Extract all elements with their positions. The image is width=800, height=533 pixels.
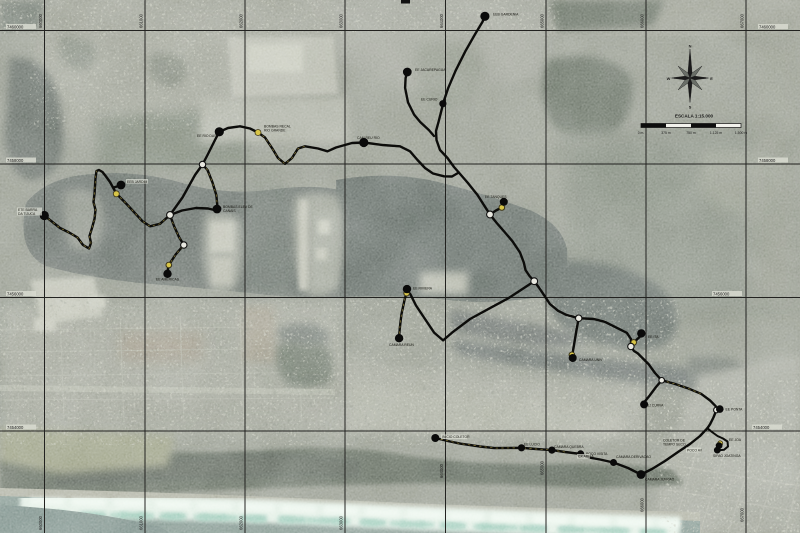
svg-text:667000: 667000 — [740, 507, 745, 522]
svg-text:S: S — [689, 105, 692, 110]
svg-text:EE PONTA: EE PONTA — [726, 408, 744, 412]
svg-text:CAMARA QUEBRA: CAMARA QUEBRA — [554, 445, 584, 449]
svg-text:EE AMERICAS: EE AMERICAS — [156, 278, 180, 282]
svg-text:TEMPO SECO: TEMPO SECO — [663, 443, 686, 447]
svg-text:E: E — [710, 76, 713, 81]
svg-text:DA TIJUCA: DA TIJUCA — [18, 212, 36, 216]
svg-text:7460000: 7460000 — [759, 25, 776, 30]
svg-text:N: N — [689, 44, 692, 49]
svg-text:662000: 662000 — [239, 13, 244, 28]
svg-text:0 m.: 0 m. — [638, 131, 645, 135]
svg-text:7456000: 7456000 — [7, 292, 24, 297]
svg-text:EE LUCIO: EE LUCIO — [524, 443, 540, 447]
svg-text:1.500 m: 1.500 m — [735, 131, 747, 135]
svg-text:INICIO COLETOR: INICIO COLETOR — [442, 435, 470, 439]
svg-text:CX AREIA: CX AREIA — [578, 455, 594, 459]
svg-text:661000: 661000 — [139, 13, 144, 28]
svg-text:667000: 667000 — [740, 13, 745, 28]
svg-text:POCO AV: POCO AV — [687, 448, 703, 452]
svg-text:RIO GRANDE: RIO GRANDE — [264, 129, 286, 133]
svg-text:666000: 666000 — [640, 13, 645, 28]
svg-text:7454000: 7454000 — [753, 425, 770, 430]
svg-text:660000: 660000 — [38, 515, 43, 530]
svg-text:7460000: 7460000 — [7, 25, 24, 30]
svg-text:665000: 665000 — [540, 460, 545, 475]
svg-text:SIFAO JOATINGA: SIFAO JOATINGA — [713, 454, 741, 458]
svg-text:665000: 665000 — [540, 13, 545, 28]
svg-text:EEB JARDIM: EEB JARDIM — [127, 180, 148, 184]
svg-text:EE CURIO: EE CURIO — [421, 98, 438, 102]
svg-text:660000: 660000 — [38, 13, 43, 28]
svg-text:666000: 666000 — [640, 497, 645, 512]
svg-text:7454000: 7454000 — [7, 425, 24, 430]
svg-text:EE ITA: EE ITA — [648, 335, 659, 339]
svg-text:CAMARA REUN: CAMARA REUN — [389, 343, 414, 347]
svg-text:EE RIO DAS: EE RIO DAS — [197, 134, 217, 138]
svg-text:CAMARA DERIVACAO: CAMARA DERIVACAO — [616, 455, 651, 459]
svg-text:ESCALA 1:15.000: ESCALA 1:15.000 — [675, 114, 714, 119]
svg-text:1.125 m: 1.125 m — [710, 131, 722, 135]
svg-text:W: W — [667, 76, 671, 81]
svg-text:CAM REU RIO: CAM REU RIO — [357, 136, 380, 140]
svg-text:7458000: 7458000 — [759, 158, 776, 163]
svg-text:664000: 664000 — [439, 463, 444, 478]
svg-text:CAMARA JUNCAO: CAMARA JUNCAO — [645, 478, 675, 482]
svg-text:CAMARA UNIV: CAMARA UNIV — [579, 358, 603, 362]
svg-text:663000: 663000 — [339, 13, 344, 28]
svg-text:EE RIVIERA: EE RIVIERA — [413, 287, 433, 291]
svg-text:750 m: 750 m — [686, 131, 696, 135]
svg-text:662000: 662000 — [239, 515, 244, 530]
svg-text:EE JACAREPAGUA: EE JACAREPAGUA — [415, 68, 446, 72]
svg-text:Lt CURVA: Lt CURVA — [648, 404, 664, 408]
svg-text:EE TANQUES: EE TANQUES — [485, 195, 507, 199]
svg-text:663000: 663000 — [339, 515, 344, 530]
svg-text:EEB GARDENIA: EEB GARDENIA — [493, 13, 519, 17]
svg-text:7458000: 7458000 — [7, 158, 24, 163]
svg-text:EE JOA: EE JOA — [729, 438, 742, 442]
svg-text:375 m: 375 m — [661, 131, 671, 135]
svg-text:664000: 664000 — [439, 13, 444, 28]
svg-text:CANAIS: CANAIS — [223, 209, 236, 213]
svg-text:7456000: 7456000 — [713, 292, 730, 297]
svg-text:661000: 661000 — [139, 515, 144, 530]
